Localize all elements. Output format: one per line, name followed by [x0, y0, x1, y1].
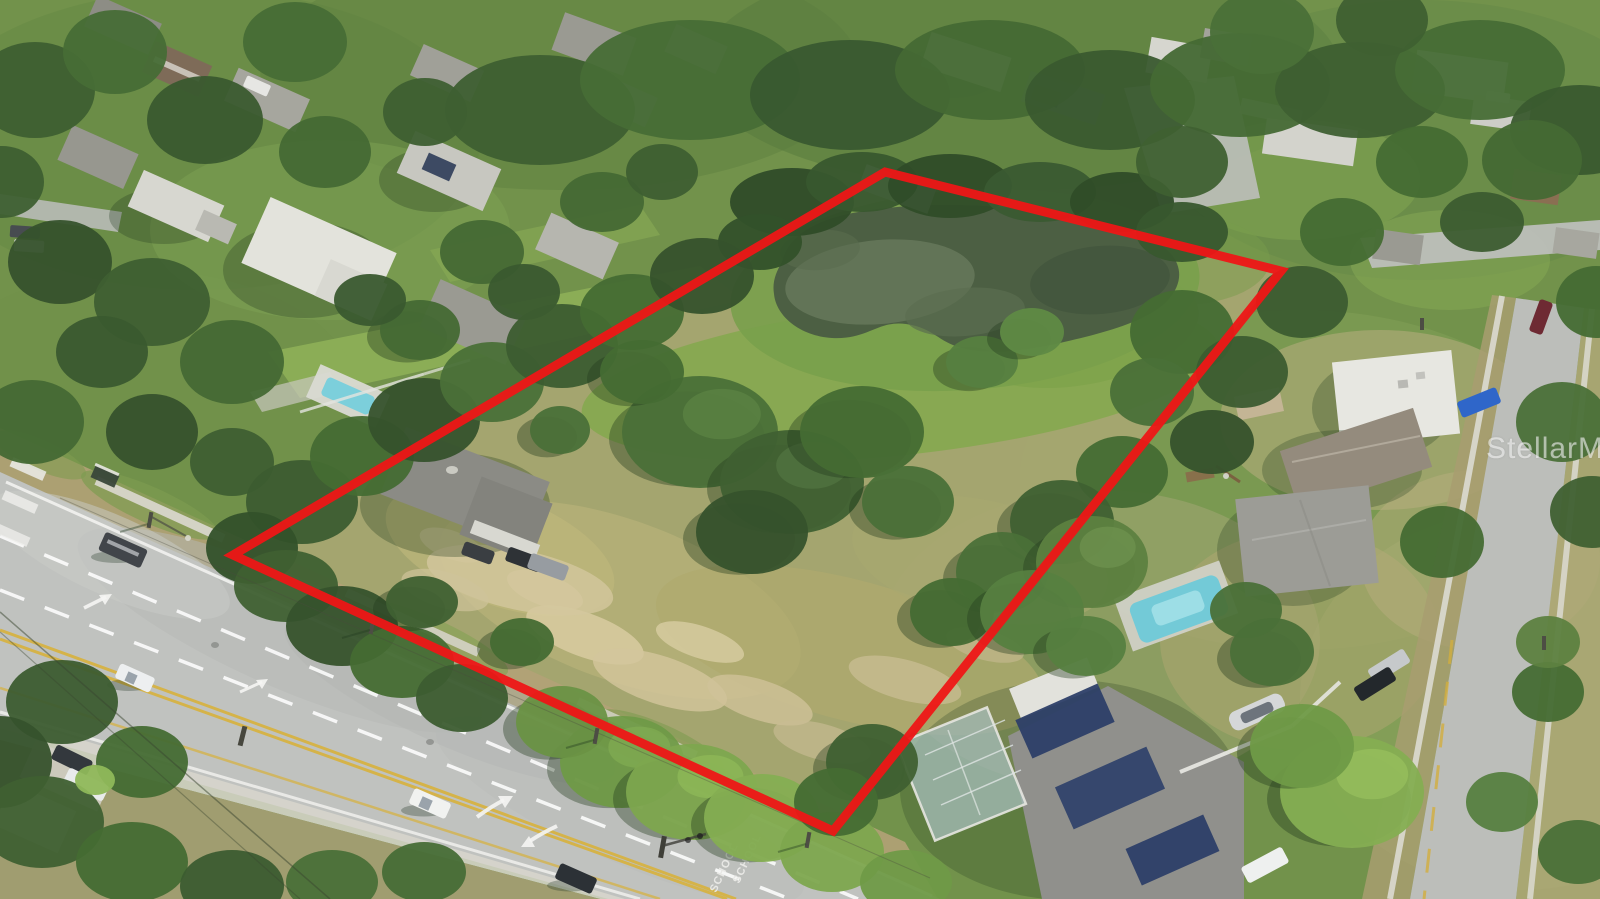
tree: [1046, 616, 1126, 676]
utility-pole: [1420, 318, 1424, 330]
utility-pole: [1542, 636, 1546, 650]
tree: [1512, 662, 1584, 722]
tree: [76, 822, 188, 899]
tree: [1170, 410, 1254, 474]
traffic-signal: [685, 837, 691, 843]
tree: [147, 76, 263, 164]
tree: [1482, 120, 1582, 200]
tree: [800, 386, 924, 478]
tree: [1250, 704, 1354, 788]
palm-tree: [75, 765, 115, 795]
tree: [180, 320, 284, 404]
tree: [1256, 266, 1348, 338]
aerial-photo-canvas: SCHOOLSCHOOL: [0, 0, 1600, 899]
tree: [63, 10, 167, 94]
tree: [334, 274, 406, 326]
tree: [1516, 616, 1580, 668]
tree: [243, 2, 347, 82]
aerial-photo: SCHOOLSCHOOL StellarMLS: [0, 0, 1600, 899]
tree: [1210, 582, 1282, 638]
tree: [696, 490, 808, 574]
tree: [56, 316, 148, 388]
tree: [1400, 506, 1484, 578]
streetlight-head: [185, 535, 191, 541]
tree: [1376, 126, 1468, 198]
tree: [106, 394, 198, 470]
tree: [1466, 772, 1538, 832]
tree: [383, 78, 467, 146]
tree: [530, 406, 590, 454]
tree: [1300, 198, 1384, 266]
tree: [386, 576, 458, 628]
tree: [1196, 336, 1288, 408]
tree: [600, 340, 684, 404]
tree: [490, 618, 554, 666]
tree: [1440, 192, 1524, 252]
tree: [626, 144, 698, 200]
tree: [279, 116, 371, 188]
traffic-signal: [697, 833, 703, 839]
house-roof: [1235, 485, 1379, 596]
tree: [862, 466, 954, 538]
tree: [1136, 126, 1228, 198]
tree: [1000, 308, 1064, 356]
